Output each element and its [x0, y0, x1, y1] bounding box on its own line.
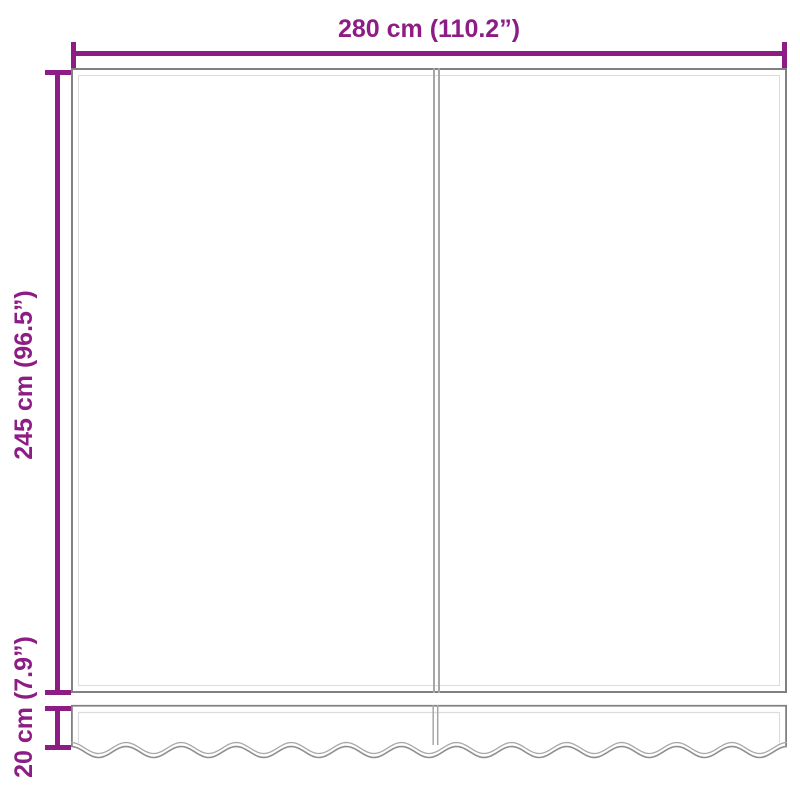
valance-dimension-cap-bottom: [45, 745, 71, 750]
valance-dimension-cap-top: [45, 706, 71, 711]
fabric-panel-center-seam-right: [438, 68, 440, 693]
width-dimension-label: 280 cm (110.2”): [71, 13, 787, 45]
width-dimension-line: [71, 51, 787, 56]
width-dimension-cap-left: [71, 42, 76, 68]
valance-wave-outer-line: [71, 747, 787, 758]
valance-dimension-line: [55, 706, 60, 750]
product-dimension-diagram: 280 cm (110.2”) 245 cm (96.5”) 20 cm (7.…: [0, 0, 800, 800]
valance-strip: [71, 704, 787, 768]
fabric-panel-center-seam-left: [433, 68, 435, 693]
height-dimension-line: [55, 70, 60, 695]
valance-wave-inner-line: [71, 743, 787, 754]
width-dimension-cap-right: [782, 42, 787, 68]
height-dimension-label: 245 cm (96.5”): [7, 215, 41, 535]
height-dimension-cap-top: [45, 70, 71, 75]
height-dimension-cap-bottom: [45, 690, 71, 695]
fabric-panel-inner-seam: [78, 75, 780, 686]
valance-dimension-label: 20 cm (7.9”): [7, 547, 41, 800]
